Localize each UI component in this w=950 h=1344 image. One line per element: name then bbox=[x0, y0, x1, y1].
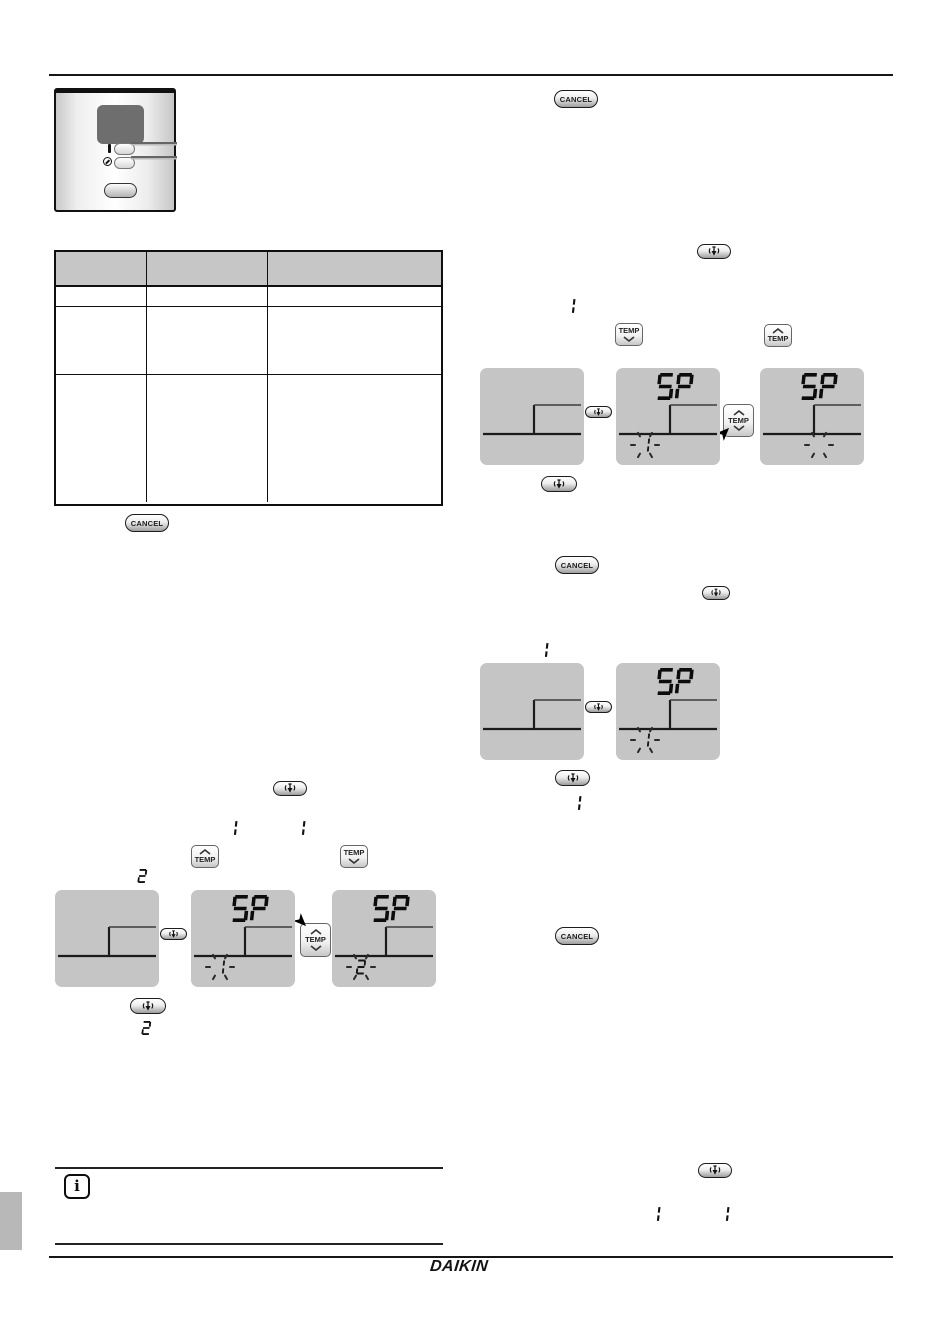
table-header-cell bbox=[268, 252, 441, 285]
step-digit bbox=[719, 1206, 729, 1222]
blink-digit-value bbox=[640, 732, 649, 747]
setpoint-code bbox=[373, 895, 409, 922]
table-cell bbox=[147, 307, 268, 374]
tap-icon bbox=[551, 479, 567, 490]
blink-digit-value bbox=[215, 959, 224, 974]
information-icon-letter: i bbox=[74, 1179, 80, 1194]
setpoint-code bbox=[657, 373, 693, 400]
setpoint-step-graphic bbox=[480, 368, 584, 465]
lcd-display bbox=[191, 890, 295, 987]
table-row bbox=[56, 307, 441, 375]
cancel-button-label: CANCEL bbox=[131, 519, 163, 528]
tap-icon bbox=[592, 408, 605, 417]
controller-button-1 bbox=[114, 143, 135, 155]
table-row bbox=[56, 375, 441, 502]
temp-up-button: TEMP bbox=[191, 845, 219, 868]
cancel-button-label: CANCEL bbox=[560, 95, 592, 104]
step-digit bbox=[295, 820, 305, 836]
settings-table bbox=[54, 250, 443, 506]
table-cell bbox=[56, 287, 147, 306]
setpoint-code bbox=[801, 373, 837, 400]
setpoint-code bbox=[232, 895, 268, 922]
step-digit bbox=[138, 869, 147, 883]
lcd-display bbox=[480, 368, 584, 465]
temp-down-button: TEMP bbox=[340, 845, 368, 868]
temp-up-button: TEMP bbox=[764, 324, 792, 347]
note-box-top-rule bbox=[55, 1167, 443, 1169]
hot-water-button bbox=[585, 406, 612, 418]
temp-down-button: TEMP bbox=[615, 323, 643, 346]
hot-water-button bbox=[160, 928, 187, 940]
chevron-down-icon bbox=[348, 858, 360, 864]
step-digit bbox=[571, 795, 581, 811]
tap-icon bbox=[565, 773, 581, 784]
cancel-button: CANCEL bbox=[555, 556, 599, 574]
lcd-display bbox=[616, 663, 720, 760]
hot-water-button bbox=[273, 781, 307, 796]
on-marker-icon bbox=[108, 144, 111, 153]
blinking-digit bbox=[628, 429, 662, 460]
cancel-button-label: CANCEL bbox=[561, 932, 593, 941]
tap-icon bbox=[140, 1001, 156, 1012]
lcd-display bbox=[480, 663, 584, 760]
controller-button-2 bbox=[114, 157, 135, 169]
setpoint-code bbox=[657, 668, 693, 695]
blink-digit-value bbox=[640, 437, 649, 452]
setpoint-step-graphic bbox=[480, 663, 584, 760]
chevron-down-icon bbox=[623, 336, 635, 342]
table-cell bbox=[268, 287, 441, 306]
blink-digit-value bbox=[356, 959, 365, 974]
temp-label: TEMP bbox=[305, 936, 326, 944]
tap-icon bbox=[282, 783, 298, 794]
temp-label: TEMP bbox=[344, 849, 365, 857]
table-cell bbox=[268, 307, 441, 374]
manual-page: CANCEL CANCEL CANCEL CANCEL TEMP TEMP TE… bbox=[0, 0, 950, 1344]
temp-label: TEMP bbox=[195, 856, 216, 864]
cancel-button: CANCEL bbox=[555, 927, 599, 945]
lcd-display bbox=[760, 368, 864, 465]
leader-line-1 bbox=[131, 142, 177, 144]
temp-label: TEMP bbox=[619, 327, 640, 335]
hot-water-button bbox=[555, 770, 590, 786]
tap-icon bbox=[167, 930, 180, 939]
table-header-cell bbox=[56, 252, 147, 285]
lcd-display bbox=[55, 890, 159, 987]
table-header-row bbox=[56, 252, 441, 287]
mode-marker-icon bbox=[103, 157, 112, 166]
step-digit bbox=[538, 642, 548, 658]
hot-water-button bbox=[702, 586, 730, 600]
cancel-button-label: CANCEL bbox=[561, 561, 593, 570]
chevron-up-icon bbox=[733, 410, 745, 416]
chevron-down-icon bbox=[733, 425, 745, 431]
information-icon: i bbox=[64, 1174, 90, 1199]
setpoint-step-graphic bbox=[55, 890, 159, 987]
hot-water-button bbox=[698, 1163, 732, 1178]
table-cell bbox=[56, 307, 147, 374]
remote-controller-figure bbox=[54, 88, 176, 212]
blinking-digit bbox=[802, 429, 836, 460]
cancel-button: CANCEL bbox=[125, 514, 169, 532]
blinking-digit bbox=[203, 951, 237, 982]
tap-icon bbox=[706, 246, 722, 257]
step-digit bbox=[565, 298, 575, 314]
temp-label: TEMP bbox=[728, 417, 749, 425]
cancel-button: CANCEL bbox=[554, 90, 598, 108]
temp-label: TEMP bbox=[768, 335, 789, 343]
hot-water-button bbox=[697, 244, 731, 259]
blinking-digit bbox=[344, 951, 378, 982]
step-digit bbox=[142, 1021, 151, 1035]
table-cell bbox=[56, 375, 147, 502]
hot-water-button bbox=[541, 476, 577, 492]
header-rule bbox=[49, 74, 893, 76]
controller-screen bbox=[97, 105, 144, 144]
step-digit bbox=[650, 1206, 660, 1222]
table-cell bbox=[147, 375, 268, 502]
tap-icon bbox=[592, 703, 605, 712]
hot-water-button bbox=[130, 998, 166, 1014]
daikin-logo: DAIKIN bbox=[429, 1258, 489, 1276]
tap-icon bbox=[709, 588, 723, 598]
table-cell bbox=[268, 375, 441, 502]
table-row bbox=[56, 287, 441, 307]
leader-line-2 bbox=[131, 156, 177, 158]
step-digit bbox=[227, 820, 237, 836]
page-edge-marker bbox=[0, 1192, 22, 1250]
blinking-digit bbox=[628, 724, 662, 755]
hot-water-button bbox=[585, 701, 612, 713]
chevron-down-icon bbox=[310, 945, 322, 951]
note-box-bottom-rule bbox=[55, 1243, 443, 1245]
temp-updown-button: TEMP bbox=[300, 923, 331, 957]
tap-icon bbox=[707, 1165, 723, 1176]
lcd-display bbox=[332, 890, 436, 987]
table-cell bbox=[147, 287, 268, 306]
lcd-display bbox=[616, 368, 720, 465]
table-header-cell bbox=[147, 252, 268, 285]
controller-button-3 bbox=[104, 183, 137, 198]
